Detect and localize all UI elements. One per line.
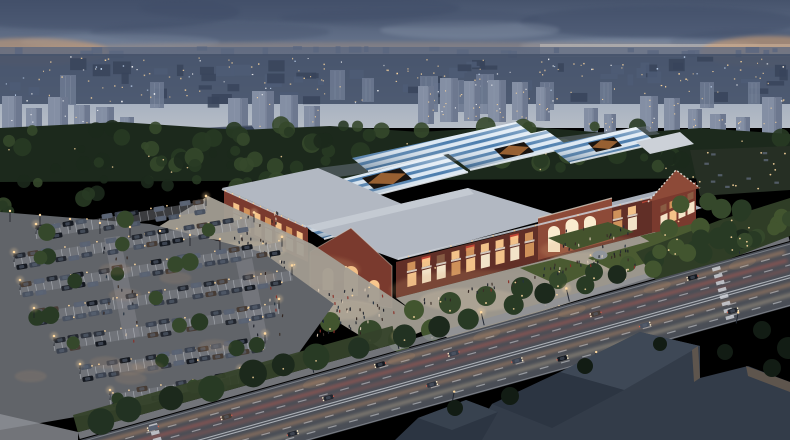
city-light — [180, 78, 181, 80]
window — [525, 242, 534, 257]
lit-window — [476, 116, 477, 117]
streetlight-glow — [562, 284, 571, 293]
foreground-tree — [763, 359, 781, 377]
tree — [188, 159, 201, 172]
rear-parking-lot — [690, 146, 790, 196]
person — [613, 237, 614, 240]
city-light — [740, 61, 742, 62]
city-light — [570, 92, 571, 93]
city-block — [611, 65, 624, 74]
plaza-lamp — [351, 295, 353, 297]
parking-tree — [191, 313, 208, 330]
tree — [234, 157, 248, 171]
asphalt-light-pool — [15, 370, 47, 382]
city-block — [601, 74, 618, 79]
person — [627, 250, 628, 253]
lit-window — [693, 126, 694, 127]
city-light — [573, 63, 574, 65]
person — [614, 255, 615, 258]
person — [550, 267, 551, 270]
parked-car — [718, 174, 723, 176]
path-light — [746, 241, 748, 243]
city-block — [294, 76, 303, 82]
lot-light — [770, 174, 772, 176]
tree — [149, 122, 161, 134]
tree — [209, 150, 217, 158]
rock-sculpture — [593, 251, 608, 260]
bollard-light — [262, 242, 264, 244]
park-light — [163, 159, 165, 161]
roofline-light — [267, 209, 269, 211]
tree-light — [404, 339, 406, 341]
city-light — [324, 93, 325, 94]
tree — [17, 174, 31, 188]
city-light — [396, 81, 397, 82]
parking-tree — [181, 253, 199, 271]
lit-window — [473, 108, 474, 109]
lit-window — [312, 121, 313, 122]
city-light — [144, 75, 145, 77]
tree — [33, 178, 43, 188]
city-light — [169, 76, 170, 77]
person — [274, 302, 275, 305]
city-light — [760, 78, 761, 79]
park-tree — [652, 245, 667, 260]
person — [590, 264, 591, 267]
city-light — [49, 95, 50, 97]
city-light — [782, 100, 783, 101]
city-light — [231, 62, 232, 64]
person — [126, 256, 127, 259]
city-light — [265, 88, 266, 89]
city-light — [702, 98, 703, 99]
city-light — [657, 68, 659, 69]
person — [356, 317, 357, 320]
window — [496, 250, 505, 265]
city-block — [10, 82, 21, 90]
person — [241, 238, 242, 241]
lit-window — [677, 103, 678, 104]
lit-window — [523, 92, 524, 93]
city-light — [383, 65, 384, 66]
person — [554, 264, 555, 267]
park-light — [74, 148, 76, 150]
city-light — [136, 69, 137, 70]
tree — [555, 162, 566, 173]
tower — [418, 86, 434, 124]
window — [466, 257, 475, 272]
city-light — [510, 72, 511, 73]
city-light — [154, 93, 155, 95]
city-block — [216, 66, 235, 76]
city-light — [550, 90, 551, 91]
city-light — [149, 73, 151, 74]
city-light — [88, 80, 89, 82]
parking-tree — [149, 291, 163, 305]
mall-aerial-rendering — [0, 0, 790, 440]
foreground-tree — [653, 337, 667, 351]
person — [269, 299, 270, 302]
lit-window — [491, 85, 492, 86]
path-light — [668, 249, 670, 251]
path-light — [731, 220, 733, 222]
park-tree — [692, 229, 710, 247]
tree — [88, 122, 104, 138]
lit-window — [86, 122, 87, 123]
park-tree — [711, 199, 731, 219]
tree — [673, 151, 690, 168]
city-light — [377, 90, 378, 91]
city-block — [201, 74, 215, 81]
city-block — [70, 58, 86, 70]
path-light — [678, 220, 680, 222]
lit-window — [740, 121, 741, 122]
lit-window — [65, 116, 66, 117]
city-block — [558, 63, 564, 72]
far-block — [364, 46, 368, 52]
tree — [192, 175, 202, 185]
city-light — [102, 87, 103, 88]
city-light — [697, 73, 698, 74]
lit-window — [479, 107, 480, 108]
tower — [512, 82, 528, 120]
city-light — [711, 86, 712, 87]
roofline-light — [429, 250, 431, 252]
person — [347, 296, 348, 299]
lot-light — [699, 181, 701, 183]
person — [103, 251, 104, 254]
city-light — [438, 91, 439, 92]
city-light — [105, 60, 107, 61]
bollard-light — [176, 228, 178, 230]
street-tree — [576, 276, 594, 294]
city-light — [150, 96, 151, 98]
lamp-glow — [50, 332, 58, 340]
lit-window — [781, 100, 782, 101]
person — [625, 249, 626, 252]
city-light — [224, 81, 225, 82]
city-light — [684, 56, 685, 57]
city-block — [154, 68, 167, 74]
city-light — [689, 91, 690, 92]
lit-window — [497, 104, 498, 105]
person — [602, 245, 603, 248]
city-light — [582, 75, 583, 76]
person — [280, 260, 281, 263]
far-tower — [700, 82, 714, 108]
person — [626, 269, 627, 272]
plaza-lamp — [558, 271, 560, 273]
lit-window — [771, 108, 772, 109]
lit-window — [11, 120, 12, 121]
lit-window — [539, 104, 540, 105]
bollard-light — [166, 258, 168, 260]
bollard-light — [164, 289, 166, 291]
roofline-light — [471, 240, 473, 242]
street-tree — [159, 386, 183, 410]
lit-window — [468, 118, 469, 119]
lot-light — [757, 188, 759, 190]
tree — [82, 187, 95, 200]
tree — [77, 145, 85, 153]
park-light — [741, 140, 743, 142]
city-light — [324, 68, 325, 70]
tree — [374, 122, 390, 138]
park-light — [171, 171, 173, 173]
roofline-light — [302, 225, 304, 227]
person — [275, 309, 276, 312]
lit-window — [500, 112, 501, 113]
roofline-light — [239, 196, 241, 198]
city-light — [444, 76, 445, 77]
roofline-light — [225, 190, 227, 192]
path-light — [739, 238, 741, 240]
far-block — [313, 47, 318, 53]
tower — [464, 81, 480, 121]
lit-window — [605, 123, 606, 124]
city-light — [185, 89, 187, 90]
parking-tree — [67, 336, 80, 349]
tree — [284, 127, 294, 137]
person — [563, 245, 564, 248]
lit-window — [775, 122, 776, 123]
path-light — [746, 245, 748, 247]
streetlight-head — [737, 311, 739, 313]
city-light — [554, 66, 555, 67]
tree — [226, 161, 234, 169]
person — [329, 293, 330, 296]
city-light — [251, 66, 253, 67]
city-light — [768, 83, 769, 84]
bollard-light — [64, 246, 66, 248]
tree-uplight — [627, 269, 629, 271]
street-tree — [303, 344, 330, 371]
lit-window — [612, 118, 613, 119]
roofline-light — [295, 221, 297, 223]
tree — [3, 135, 15, 147]
park-light — [406, 143, 408, 145]
city-light — [734, 78, 735, 79]
lamp-glow — [202, 192, 210, 200]
person — [379, 314, 380, 317]
city-light — [407, 71, 408, 72]
lit-window — [430, 93, 431, 94]
lit-window — [546, 109, 547, 110]
city-block — [29, 87, 40, 95]
rendering-viewport: { "meta": {"width": 790, "height": 440, … — [0, 0, 790, 440]
park-tree — [767, 222, 781, 236]
tree — [144, 141, 159, 156]
roofline-light — [232, 193, 234, 195]
bollard-light — [96, 241, 98, 243]
tree — [13, 138, 31, 156]
city-light — [529, 98, 530, 99]
roofline-light — [619, 204, 621, 206]
tree-uplight — [557, 285, 559, 287]
lit-window — [522, 116, 523, 117]
asphalt-light-pool — [159, 272, 191, 284]
parking-tree — [228, 340, 244, 356]
lit-window — [674, 105, 675, 106]
city-block — [113, 61, 131, 74]
parked-car — [725, 186, 730, 188]
city-light — [717, 91, 718, 92]
window — [628, 216, 637, 231]
tree-light — [584, 288, 586, 290]
parked-car — [704, 163, 709, 165]
city-light — [294, 61, 296, 62]
asphalt-light-pool — [199, 340, 231, 352]
city-light — [474, 80, 475, 82]
city-light — [31, 93, 32, 94]
street-tree — [458, 309, 479, 330]
city-block — [93, 64, 111, 76]
person — [276, 295, 277, 298]
tower — [440, 78, 458, 122]
bollard-light — [276, 270, 278, 272]
person — [424, 301, 425, 304]
lit-window — [612, 122, 613, 123]
park-light — [665, 168, 667, 170]
roofline-light — [514, 230, 516, 232]
city-light — [132, 66, 134, 67]
city-light — [355, 101, 357, 102]
city-light — [310, 76, 311, 77]
lamp-glow — [10, 248, 18, 256]
city-block — [121, 73, 128, 84]
lit-window — [262, 94, 263, 95]
city-light — [461, 94, 462, 95]
city-light — [298, 70, 299, 71]
city-block — [208, 97, 220, 108]
city-light — [270, 88, 271, 89]
far-block — [197, 46, 207, 50]
person — [359, 308, 360, 311]
far-block — [15, 47, 23, 54]
city-light — [108, 58, 110, 59]
park-tree — [644, 260, 661, 277]
park-light — [281, 156, 283, 158]
far-tower — [362, 78, 374, 102]
lit-window — [609, 126, 610, 127]
person — [577, 261, 578, 264]
tree — [161, 179, 173, 191]
lot-light — [773, 163, 775, 165]
street-tree — [88, 408, 115, 435]
city-light — [661, 85, 663, 86]
roofline-light — [281, 215, 283, 217]
plaza-lamp — [345, 266, 347, 268]
city-light — [121, 101, 123, 103]
parked-car — [774, 182, 779, 184]
city-block — [200, 67, 214, 75]
tree — [230, 146, 240, 156]
city-light — [258, 63, 259, 65]
person — [438, 297, 439, 300]
park-light — [8, 149, 10, 151]
bollard-light — [150, 208, 152, 210]
parking-tree — [38, 224, 55, 241]
parking-tree — [28, 309, 44, 325]
city-light — [308, 58, 309, 59]
roofline-light — [556, 219, 558, 221]
lit-window — [589, 123, 590, 124]
foreground-tree — [717, 344, 733, 360]
city-block — [227, 84, 239, 91]
person — [557, 272, 558, 275]
city-light — [483, 60, 484, 61]
far-block — [772, 48, 777, 52]
city-block — [303, 96, 320, 104]
tree-uplight — [413, 316, 415, 318]
person — [627, 232, 628, 235]
city-light — [110, 101, 111, 102]
person — [383, 309, 384, 312]
city-light — [644, 93, 645, 94]
city-block — [673, 63, 683, 70]
lamp-head — [99, 222, 101, 224]
city-light — [460, 95, 461, 96]
city-light — [610, 65, 611, 66]
roofline-light — [253, 202, 255, 204]
lit-window — [654, 118, 655, 119]
city-light — [143, 60, 145, 61]
roofline-light — [408, 256, 410, 258]
plaza-lamp — [440, 301, 442, 303]
city-light — [83, 69, 84, 70]
far-block — [554, 48, 559, 54]
city-light — [755, 76, 756, 77]
city-block — [199, 85, 212, 89]
city-light — [680, 80, 681, 81]
lit-window — [82, 121, 83, 122]
tree — [156, 155, 167, 166]
lit-window — [649, 106, 650, 107]
lit-window — [649, 100, 650, 101]
city-light — [557, 69, 559, 70]
person — [554, 266, 555, 269]
person — [323, 333, 324, 336]
lit-window — [455, 107, 456, 108]
lamp-head — [129, 226, 131, 228]
city-light — [81, 58, 82, 59]
city-block — [477, 61, 484, 65]
person — [121, 289, 122, 292]
streetlight-head — [453, 390, 455, 392]
lit-window — [674, 113, 675, 114]
city-light — [556, 98, 557, 99]
far-block — [746, 47, 760, 53]
person — [320, 330, 321, 333]
lit-window — [526, 117, 527, 118]
person — [609, 236, 610, 239]
park-light — [112, 166, 114, 168]
city-light — [186, 95, 188, 96]
city-block — [628, 74, 634, 85]
person — [265, 272, 266, 275]
person — [106, 275, 107, 278]
lit-window — [739, 122, 740, 123]
person — [279, 333, 280, 336]
plaza-lamp — [434, 267, 436, 269]
parking-tree — [117, 211, 134, 228]
plaza-lamp — [368, 286, 370, 288]
street-tree — [272, 353, 295, 376]
lit-window — [444, 106, 445, 107]
tree — [313, 133, 329, 149]
city-light — [407, 68, 408, 69]
city-light — [761, 59, 762, 60]
